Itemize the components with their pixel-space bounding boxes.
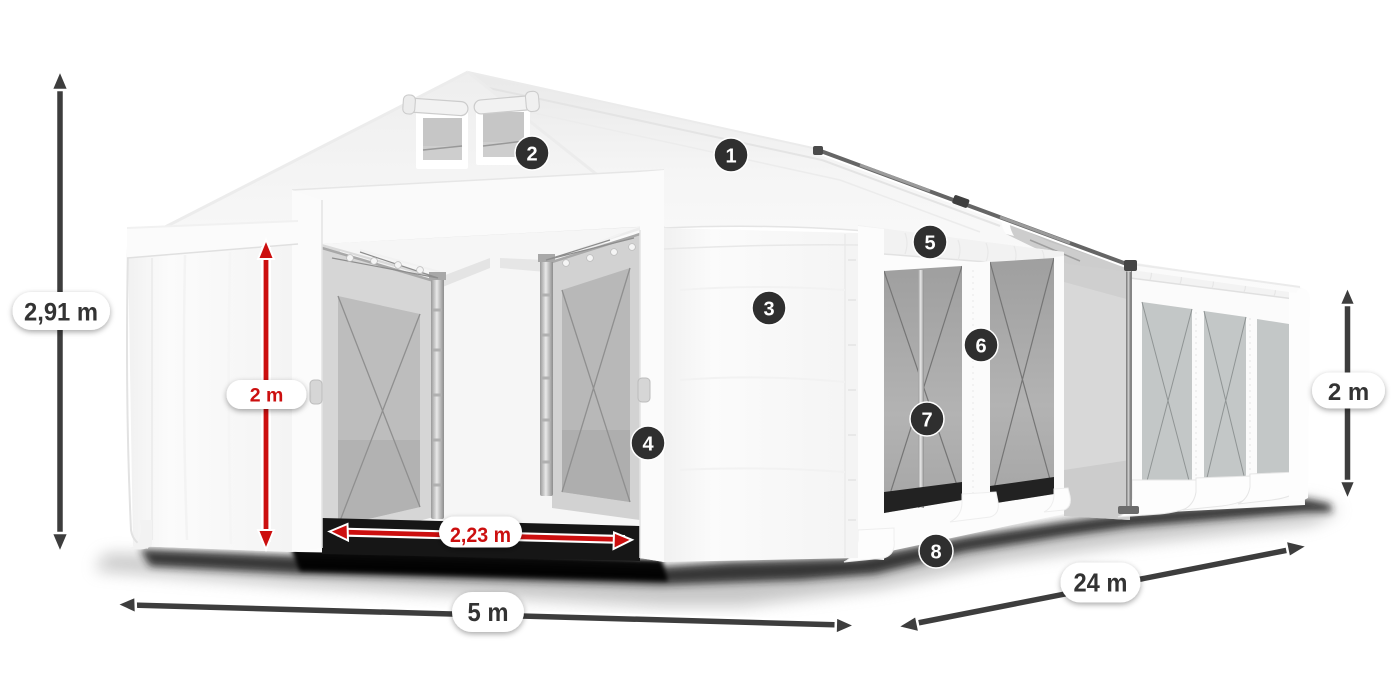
svg-text:24 m: 24 m	[1074, 568, 1128, 598]
svg-text:8: 8	[930, 542, 941, 564]
svg-text:2: 2	[526, 144, 537, 166]
svg-text:5 m: 5 m	[468, 597, 509, 627]
svg-text:2 m: 2 m	[1328, 379, 1369, 406]
svg-text:6: 6	[975, 336, 986, 358]
svg-text:1: 1	[725, 146, 736, 168]
svg-text:2,23 m: 2,23 m	[450, 524, 511, 547]
svg-text:7: 7	[921, 410, 932, 432]
svg-text:2 m: 2 m	[250, 385, 284, 407]
svg-text:2,91 m: 2,91 m	[24, 299, 98, 327]
svg-text:4: 4	[642, 434, 654, 456]
svg-text:3: 3	[763, 299, 774, 321]
svg-text:5: 5	[924, 233, 935, 255]
